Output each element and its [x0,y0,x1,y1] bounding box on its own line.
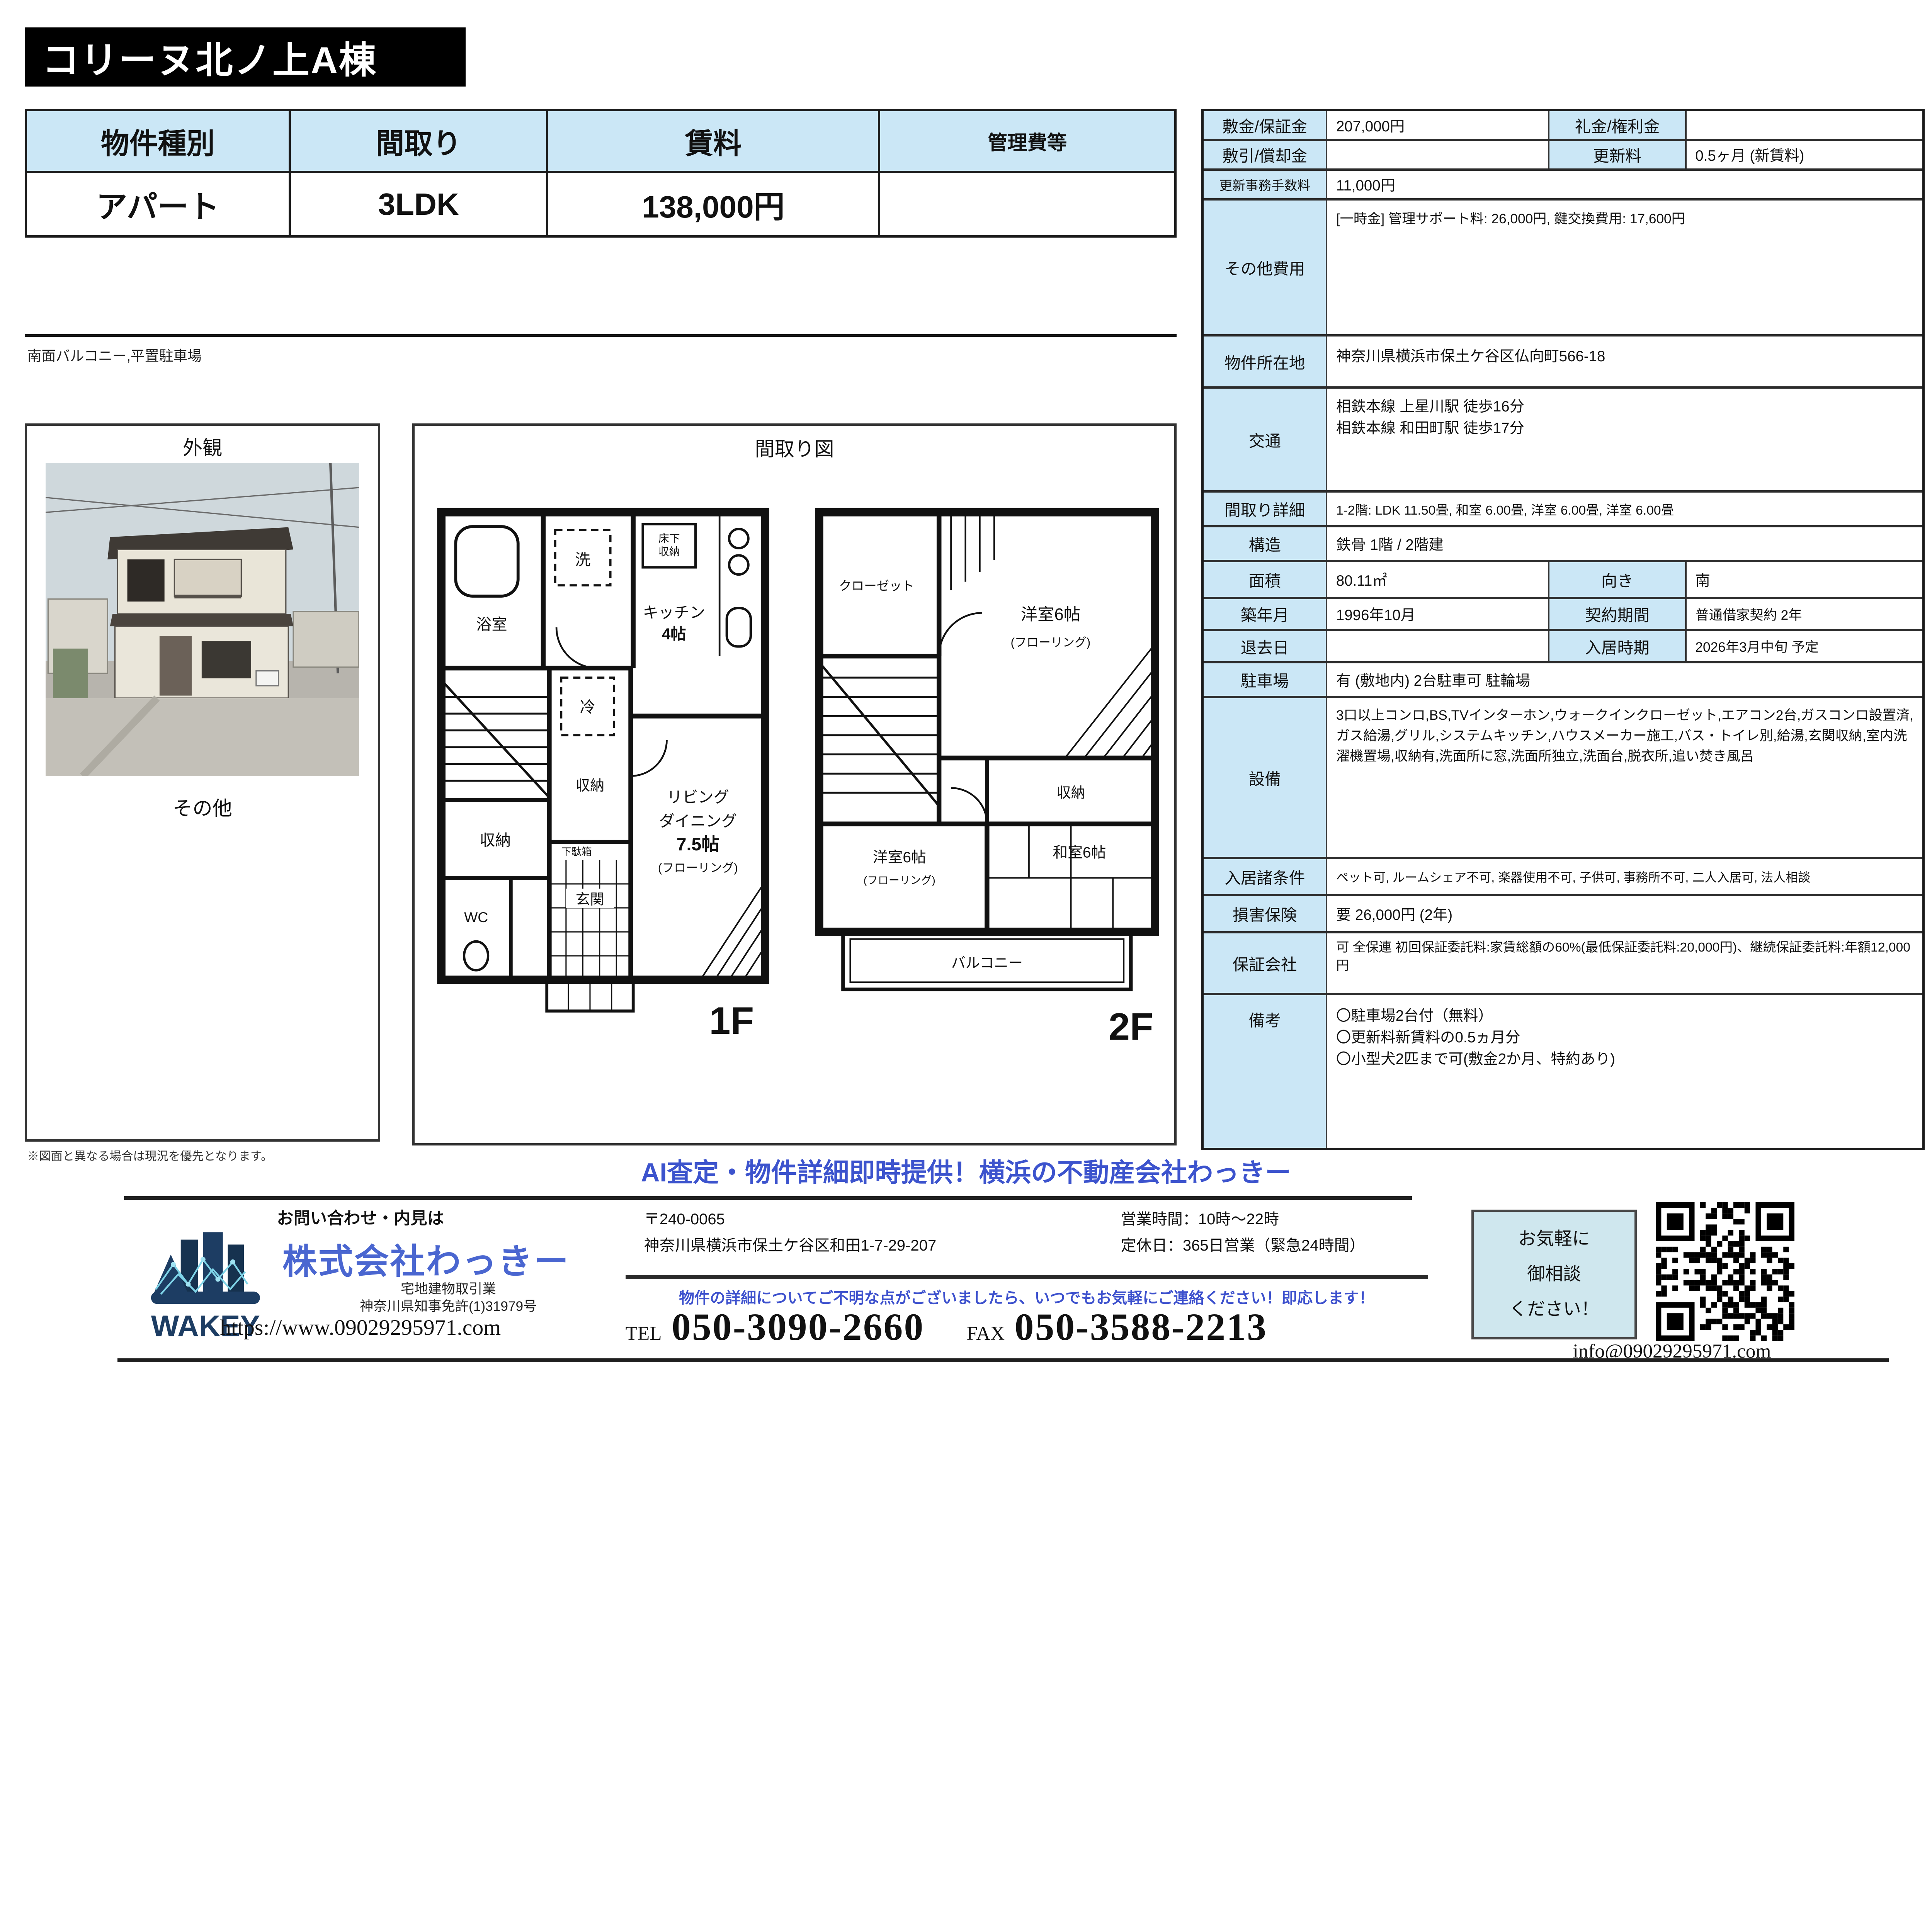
remark-line-3: 〇小型犬2匹まで可(敷金2か月、特約あり) [1336,1049,1615,1070]
room-label-closet: クローゼット [839,578,914,593]
consult-line-3: ください！ [1509,1292,1599,1327]
business-hours: 営業時間：10時～22時 定休日：365日営業（緊急24時間） [1121,1206,1365,1259]
remark-line-1: 〇駐車場2台付（無料） [1336,1005,1615,1027]
detail-table: 敷金/保証金 207,000円 礼金/権利金 敷引/償却金 更新料 0.5ヶ月 … [1201,109,1925,1150]
divider-line [626,1275,1428,1279]
feature-note: 南面バルコニー,平置駐車場 [27,344,202,365]
table-row: 物件所在地 神奈川県横浜市保土ケ谷区仏向町566-18 [1204,336,1922,389]
value-equipment: 3口以上コンロ,BS,TVインターホン,ウォークインクローゼット,エアコン2台,… [1327,698,1922,857]
room-label-japanese: 和室6帖 [1053,844,1106,861]
transit-line-2: 相鉄本線 和田町駅 徒歩17分 [1336,418,1524,439]
value-moveout [1327,631,1548,661]
transit-line-1: 相鉄本線 上星川駅 徒歩16分 [1336,396,1524,418]
value-insurance: 要 26,000円 (2年) [1327,896,1922,931]
value-renewal-fee: 0.5ヶ月 (新賃料) [1687,141,1922,168]
label-insurance: 損害保険 [1204,896,1328,931]
floor-label-1f: 1F [709,999,754,1042]
summary-value-rent: 138,000円 [548,173,880,235]
label-transit: 交通 [1204,389,1328,490]
company-name: 株式会社わっきー [282,1233,570,1283]
value-deposit: 207,000円 [1327,111,1548,139]
room-label-storage-b: 収納 [480,831,511,849]
value-facing: 南 [1687,562,1922,597]
room-label-bath: 浴室 [476,615,507,633]
room-label-kitchen: キッチン [643,603,705,621]
tel-number: 050-3090-2660 [672,1305,924,1349]
footer-headline: AI査定・物件詳細即時提供！横浜の不動産会社わっきー [0,1152,1932,1189]
label-structure: 構造 [1204,527,1328,560]
label-area: 面積 [1204,562,1328,597]
summary-value-layout: 3LDK [291,173,549,235]
table-row: 設備 3口以上コンロ,BS,TVインターホン,ウォークインクローゼット,エアコン… [1204,698,1922,859]
consult-line-1: お気軽に [1518,1222,1590,1257]
label-equipment: 設備 [1204,698,1328,857]
value-conditions: ペット可, ルームシェア不可, 楽器使用不可, 子供可, 事務所不可, 二人入居… [1327,859,1922,894]
company-url: https://www.09029295971.com [105,1315,616,1340]
table-row: 敷引/償却金 更新料 0.5ヶ月 (新賃料) [1204,141,1922,171]
value-key-money [1687,111,1922,139]
label-built: 築年月 [1204,599,1328,629]
label-location: 物件所在地 [1204,336,1328,386]
qr-code [1656,1202,1794,1341]
property-title: コリーヌ北ノ上A棟 [42,30,377,84]
summary-table: 物件種別 間取り 賃料 管理費等 アパート 3LDK 138,000円 [25,109,1177,238]
label-conditions: 入居諸条件 [1204,859,1328,894]
label-moveout: 退去日 [1204,631,1328,661]
room-label-western-b-floor: (フローリング) [863,874,935,886]
room-label-living-1: リビング [667,788,729,806]
label-deposit: 敷金/保証金 [1204,111,1328,139]
table-row: 面積 80.11㎡ 向き 南 [1204,562,1922,599]
value-parking: 有 (敷地内) 2台駐車可 駐輪場 [1327,663,1922,696]
postal-code: 〒240-0065 [644,1206,937,1232]
value-transit: 相鉄本線 上星川駅 徒歩16分 相鉄本線 和田町駅 徒歩17分 [1327,389,1922,490]
value-remarks: 〇駐車場2台付（無料） 〇更新料新賃料の0.5ヵ月分 〇小型犬2匹まで可(敷金2… [1327,995,1922,1147]
room-label-living-floor: (フローリング) [658,861,738,875]
exterior-label: 外観 [27,432,378,461]
table-row: 退去日 入居時期 2026年3月中旬 予定 [1204,631,1922,663]
label-contract-term: 契約期間 [1548,599,1687,629]
table-row: 駐車場 有 (敷地内) 2台駐車可 駐輪場 [1204,663,1922,698]
fax-label: FAX [966,1322,1005,1345]
table-row: 保証会社 可 全保連 初回保証委託料:家賃総額の60%(最低保証委託料:20,0… [1204,933,1922,995]
other-label: その他 [27,792,378,821]
address-line: 神奈川県横浜市保土ケ谷区和田1-7-29-207 [644,1232,937,1259]
summary-value-fees [880,173,1174,235]
table-row: 構造 鉄骨 1階 / 2階建 [1204,527,1922,562]
consult-box: お気軽に 御相談 ください！ [1471,1210,1637,1339]
value-structure: 鉄骨 1階 / 2階建 [1327,527,1922,560]
room-label-laundry: 洗 [575,551,590,568]
summary-header-rent: 賃料 [548,111,880,173]
table-row: 入居諸条件 ペット可, ルームシェア不可, 楽器使用不可, 子供可, 事務所不可… [1204,859,1922,896]
label-other-costs: その他費用 [1204,201,1328,335]
floorplan-title: 間取り図 [415,433,1174,462]
room-label-western-a: 洋室6帖 [1020,605,1080,624]
remark-line-2: 〇更新料新賃料の0.5ヵ月分 [1336,1027,1615,1049]
property-title-banner: コリーヌ北ノ上A棟 [25,27,466,87]
room-label-kitchen-size: 4帖 [662,625,686,642]
table-row: 敷金/保証金 207,000円 礼金/権利金 [1204,111,1922,141]
company-address: 〒240-0065 神奈川県横浜市保土ケ谷区和田1-7-29-207 [644,1206,937,1259]
table-row: その他費用 [一時金] 管理サポート料: 26,000円, 鍵交換費用: 17,… [1204,201,1922,337]
property-flyer-page: コリーヌ北ノ上A棟 物件種別 間取り 賃料 管理費等 アパート 3LDK 138… [0,0,1932,1366]
value-layout-detail: 1-2階: LDK 11.50畳, 和室 6.00畳, 洋室 6.00畳, 洋室… [1327,493,1922,525]
label-remarks: 備考 [1204,995,1328,1147]
room-label-wc: WC [464,909,488,925]
label-movein: 入居時期 [1548,631,1687,661]
tel-label: TEL [626,1322,662,1345]
consult-line-2: 御相談 [1527,1257,1581,1292]
value-amortization [1327,141,1548,168]
exterior-photo [46,463,359,776]
floorplan-section: 間取り図 [412,423,1177,1145]
divider-line [25,334,1177,336]
room-label-underfloor-2: 収納 [658,546,680,557]
contact-notice: 物件の詳細についてご不明な点がございましたら、いつでもお気軽にご連絡ください！即… [626,1285,1428,1308]
floor-label-2f: 2F [1109,1005,1153,1048]
room-label-living-size: 7.5帖 [676,834,719,854]
label-layout-detail: 間取り詳細 [1204,493,1328,525]
room-label-storage-a: 収納 [575,777,604,794]
room-label-balcony: バルコニー [951,955,1022,971]
room-label-underfloor-1: 床下 [658,532,680,544]
label-amortization: 敷引/償却金 [1204,141,1328,168]
table-row: 備考 〇駐車場2台付（無料） 〇更新料新賃料の0.5ヵ月分 〇小型犬2匹まで可(… [1204,995,1922,1147]
value-location: 神奈川県横浜市保土ケ谷区仏向町566-18 [1327,336,1922,386]
room-label-living-2: ダイニング [659,812,737,830]
value-guarantor: 可 全保連 初回保証委託料:家賃総額の60%(最低保証委託料:20,000円)、… [1327,933,1922,993]
value-movein: 2026年3月中旬 予定 [1687,631,1922,661]
table-row: 間取り詳細 1-2階: LDK 11.50畳, 和室 6.00畳, 洋室 6.0… [1204,493,1922,527]
fax-number: 050-3588-2213 [1015,1305,1267,1349]
divider-line [117,1358,1888,1362]
label-facing: 向き [1548,562,1687,597]
label-parking: 駐車場 [1204,663,1328,696]
summary-header-fees: 管理費等 [880,111,1174,173]
phone-row: TEL 050-3090-2660 FAX 050-3588-2213 [626,1305,1443,1349]
table-row: 築年月 1996年10月 契約期間 普通借家契約 2年 [1204,599,1922,631]
hours-line: 営業時間：10時～22時 [1121,1206,1365,1232]
holiday-line: 定休日：365日営業（緊急24時間） [1121,1232,1365,1259]
contact-note: お問い合わせ・内見は [105,1205,616,1229]
label-renewal-fee: 更新料 [1548,141,1687,168]
table-row: 更新事務手数料 11,000円 [1204,171,1922,201]
value-renewal-admin-fee: 11,000円 [1327,171,1922,198]
license-type: 宅地建物取引業 [282,1278,614,1298]
label-key-money: 礼金/権利金 [1548,111,1687,139]
summary-header-type: 物件種別 [27,111,291,173]
label-renewal-admin-fee: 更新事務手数料 [1204,171,1328,198]
room-label-storage-2f: 収納 [1056,784,1085,800]
summary-header-layout: 間取り [291,111,549,173]
value-built: 1996年10月 [1327,599,1548,629]
value-other-costs: [一時金] 管理サポート料: 26,000円, 鍵交換費用: 17,600円 [1327,201,1922,335]
table-row: 損害保険 要 26,000円 (2年) [1204,896,1922,933]
value-area: 80.11㎡ [1327,562,1548,597]
room-label-entrance: 玄関 [575,891,604,907]
room-label-fridge: 冷 [580,698,595,716]
label-guarantor: 保証会社 [1204,933,1328,993]
floorplan-drawing: 浴室 洗 床下 収納 キッチン 4帖 冷 収納 収納 WC 下駄箱 玄関 リビン… [417,466,1177,1140]
table-row: 交通 相鉄本線 上星川駅 徒歩16分 相鉄本線 和田町駅 徒歩17分 [1204,389,1922,493]
room-label-shoebox: 下駄箱 [561,846,592,857]
room-label-western-b: 洋室6帖 [872,849,926,866]
divider-line [124,1196,1412,1200]
room-label-western-a-floor: (フローリング) [1010,636,1090,649]
value-contract-term: 普通借家契約 2年 [1687,599,1922,629]
summary-value-type: アパート [27,173,291,235]
photo-section: 外観 その他 [25,423,380,1142]
license-number: 神奈川県知事免許(1)31979号 [282,1295,614,1315]
